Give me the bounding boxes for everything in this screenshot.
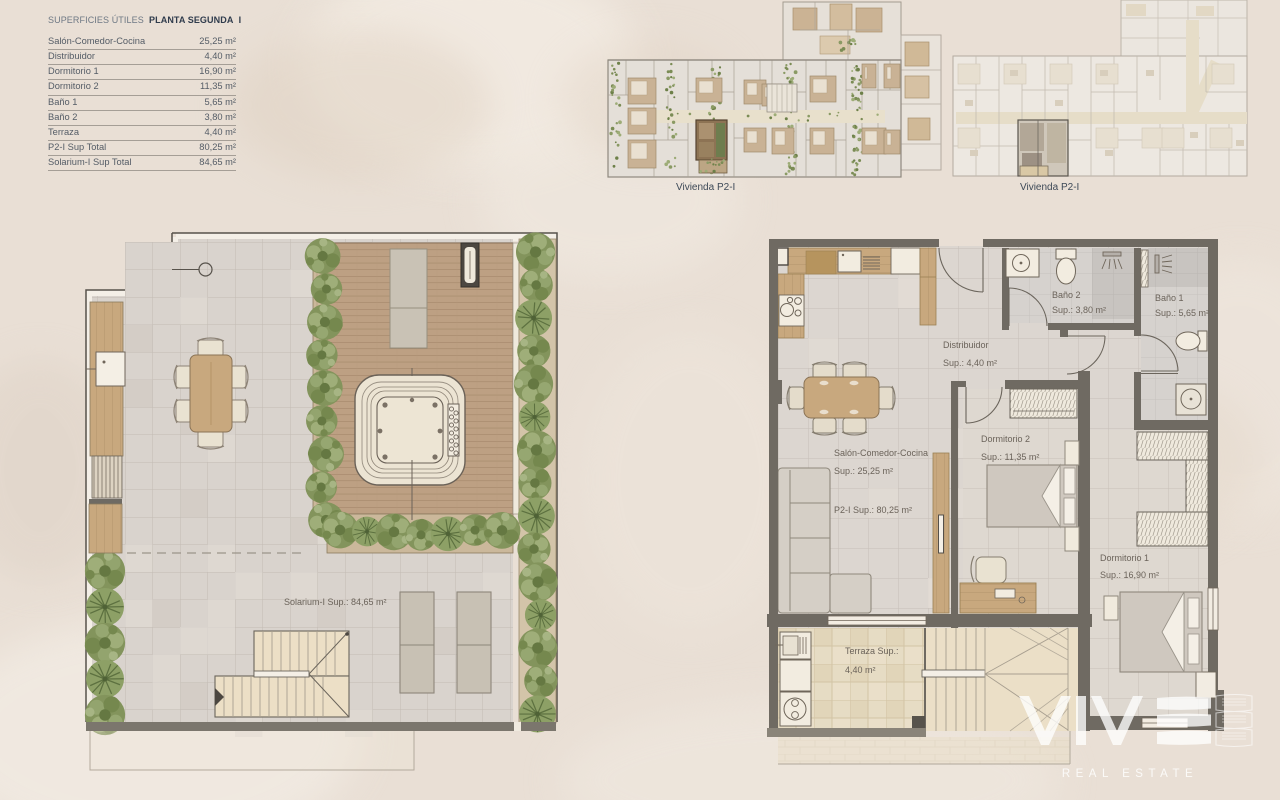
svg-text:Sup.: 11,35 m²: Sup.: 11,35 m²: [981, 452, 1039, 462]
svg-text:Terraza Sup.:: Terraza Sup.:: [845, 646, 899, 656]
svg-text:Sup.: 3,80 m²: Sup.: 3,80 m²: [1052, 305, 1106, 315]
svg-text:Baño 2: Baño 2: [1052, 290, 1081, 300]
svg-text:Baño 1: Baño 1: [1155, 293, 1184, 303]
svg-text:Solarium-I Sup.: 84,65 m²: Solarium-I Sup.: 84,65 m²: [284, 597, 387, 607]
svg-text:REAL ESTATE: REAL ESTATE: [1062, 768, 1198, 780]
svg-text:Salón-Comedor-Cocina: Salón-Comedor-Cocina: [834, 448, 928, 458]
svg-text:Sup.: 5,65 m²: Sup.: 5,65 m²: [1155, 308, 1209, 318]
svg-text:Distribuidor: Distribuidor: [943, 340, 989, 350]
svg-text:Sup.: 16,90 m²: Sup.: 16,90 m²: [1100, 570, 1159, 580]
svg-text:Dormitorio 1: Dormitorio 1: [1100, 553, 1149, 563]
svg-text:Sup.: 4,40 m²: Sup.: 4,40 m²: [943, 358, 997, 368]
svg-text:Dormitorio 2: Dormitorio 2: [981, 434, 1030, 444]
svg-text:4,40 m²: 4,40 m²: [845, 665, 876, 675]
svg-text:P2-I Sup.: 80,25 m²: P2-I Sup.: 80,25 m²: [834, 505, 912, 515]
svg-text:Sup.: 25,25 m²: Sup.: 25,25 m²: [834, 466, 893, 476]
